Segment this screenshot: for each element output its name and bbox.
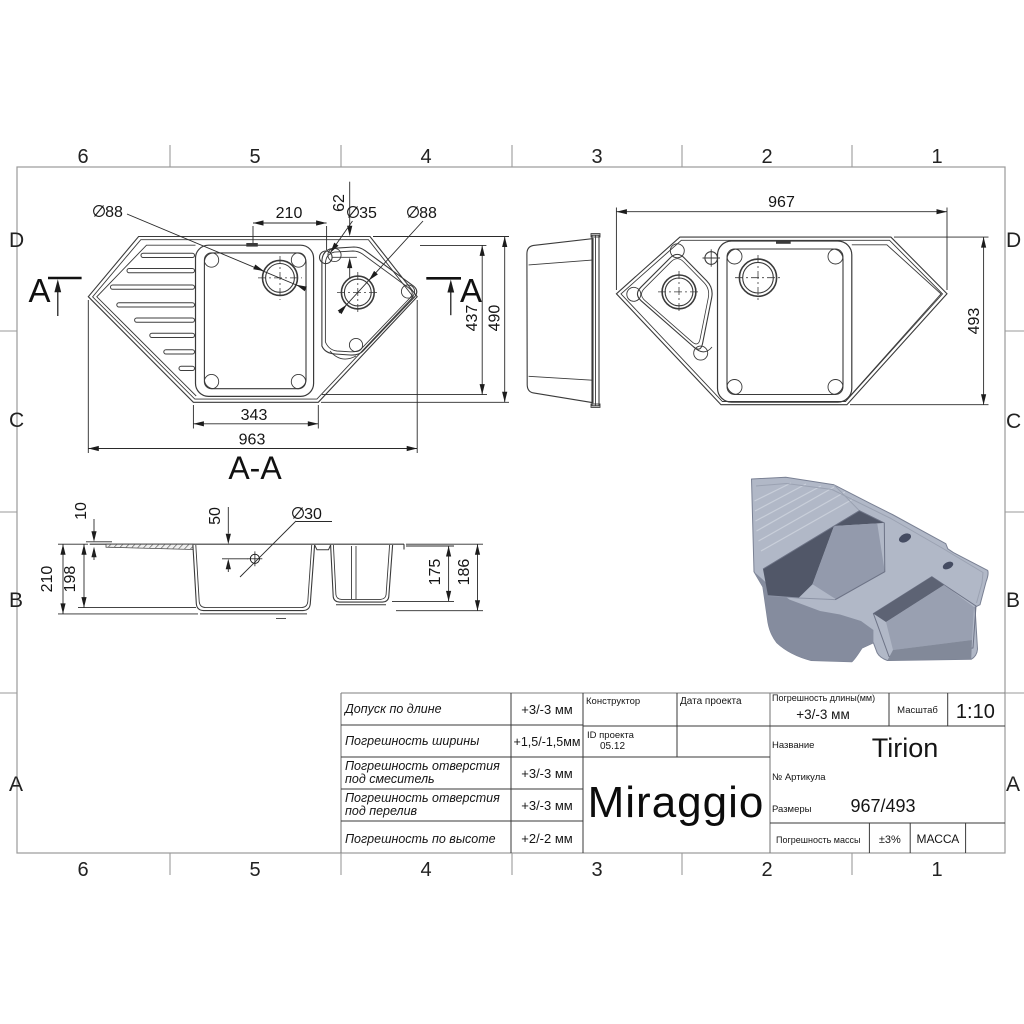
svg-text:490: 490 [487,305,504,332]
svg-text:Допуск по длине: Допуск по длине [343,702,442,716]
svg-text:Название: Название [772,740,814,751]
svg-text:C: C [1006,410,1021,433]
svg-text:+2/-2 мм: +2/-2 мм [521,831,573,846]
svg-text:Погрешность по высоте: Погрешность по высоте [345,832,496,846]
svg-text:Дата проекта: Дата проекта [680,696,742,707]
svg-text:967: 967 [768,194,795,211]
svg-text:Масштаб: Масштаб [897,705,938,716]
svg-text:±3%: ±3% [879,834,901,846]
svg-text:под перелив: под перелив [345,804,418,818]
svg-text:88: 88 [419,205,437,222]
svg-text:D: D [9,229,24,252]
svg-text:30: 30 [304,506,322,523]
svg-text:05.12: 05.12 [600,741,625,752]
svg-text:967/493: 967/493 [850,796,915,816]
svg-text:Погрешность отверстия: Погрешность отверстия [345,791,500,805]
svg-text:МАССА: МАССА [916,832,959,846]
svg-text:A-A: A-A [228,450,282,486]
svg-text:+3/-3 мм: +3/-3 мм [521,798,573,813]
svg-text:B: B [1006,589,1020,612]
svg-text:A: A [28,272,50,309]
svg-text:A: A [1006,773,1020,796]
svg-text:+3/-3 мм: +3/-3 мм [521,766,573,781]
svg-text:88: 88 [105,204,123,221]
svg-text:D: D [1006,229,1021,252]
svg-text:343: 343 [241,407,268,424]
svg-text:186: 186 [456,559,473,586]
svg-text:Погрешность ширины: Погрешность ширины [345,734,479,748]
svg-text:5: 5 [249,859,260,881]
svg-text:+3/-3 мм: +3/-3 мм [796,707,849,722]
svg-text:6: 6 [77,859,88,881]
svg-text:10: 10 [73,502,90,520]
svg-text:3: 3 [591,859,602,881]
svg-text:A: A [460,272,482,309]
svg-text:Погрешность массы: Погрешность массы [776,835,860,845]
svg-text:B: B [9,589,23,612]
svg-text:4: 4 [420,859,431,881]
svg-text:Погрешность отверстия: Погрешность отверстия [345,759,500,773]
svg-text:50: 50 [207,507,224,525]
svg-text:2: 2 [761,859,772,881]
svg-text:493: 493 [966,308,983,335]
svg-text:1: 1 [931,146,942,168]
svg-text:Погрешность длины(мм): Погрешность длины(мм) [772,693,875,703]
svg-text:1:10: 1:10 [956,701,995,723]
svg-text:Размеры: Размеры [772,804,812,815]
svg-text:5: 5 [249,146,260,168]
svg-text:210: 210 [39,566,56,593]
svg-text:3: 3 [591,146,602,168]
svg-text:62: 62 [331,194,348,212]
svg-text:35: 35 [359,205,377,222]
svg-text:A: A [9,773,23,796]
svg-text:ID проекта: ID проекта [587,730,635,741]
svg-text:Miraggio: Miraggio [588,778,765,827]
svg-text:+1,5/-1,5мм: +1,5/-1,5мм [514,735,581,749]
svg-text:175: 175 [427,559,444,586]
svg-text:№ Артикула: № Артикула [772,772,826,783]
svg-text:1: 1 [931,859,942,881]
svg-text:2: 2 [761,146,772,168]
svg-text:Конструктор: Конструктор [586,696,640,707]
svg-text:210: 210 [276,205,303,222]
svg-text:198: 198 [62,566,79,593]
svg-text:963: 963 [239,432,266,449]
svg-text:6: 6 [77,146,88,168]
svg-text:4: 4 [420,146,431,168]
svg-text:под смеситель: под смеситель [345,772,435,786]
svg-text:+3/-3 мм: +3/-3 мм [521,702,573,717]
svg-text:Tirion: Tirion [872,733,939,763]
svg-text:C: C [9,409,24,432]
